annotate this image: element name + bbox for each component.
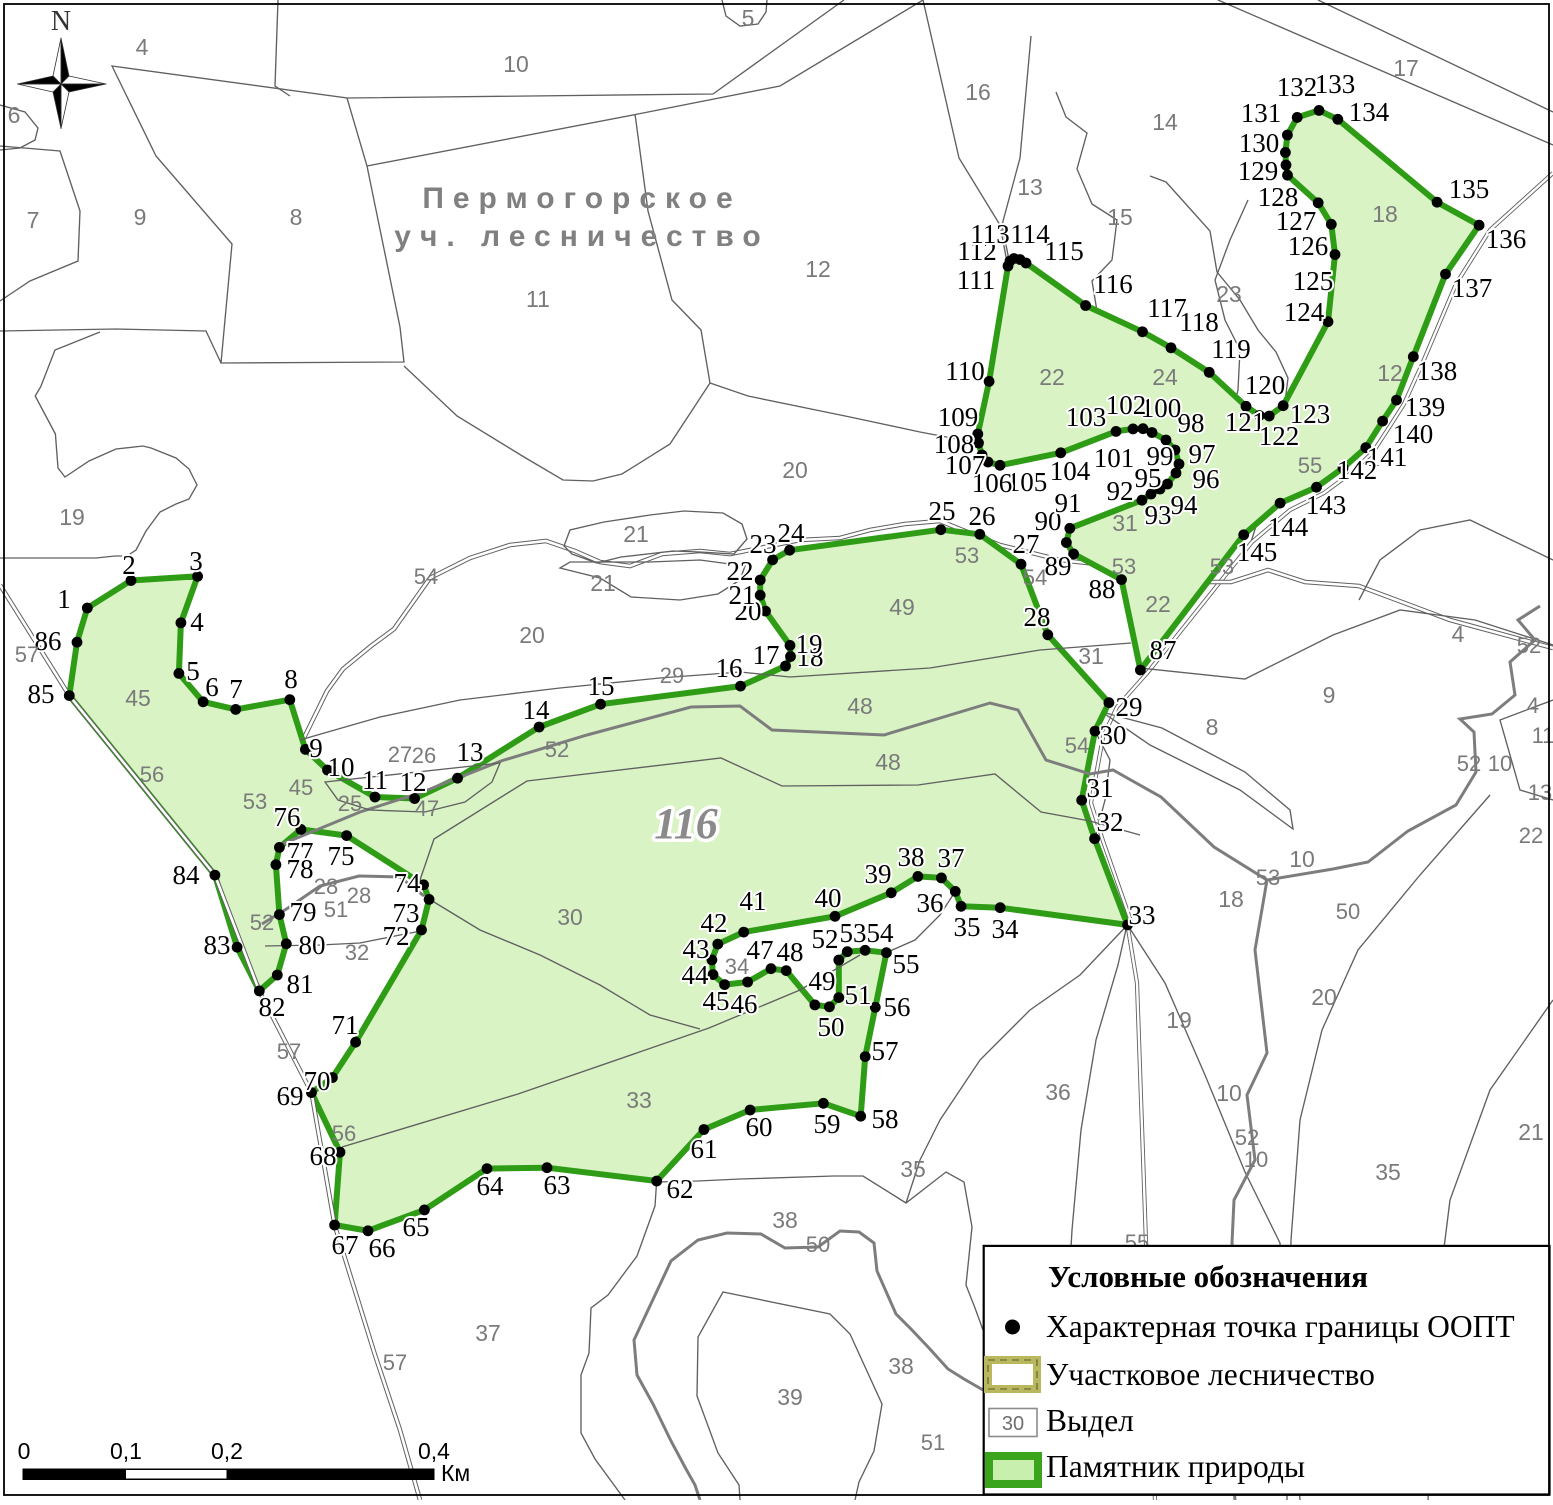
svg-text:45: 45 — [125, 685, 151, 711]
svg-text:17: 17 — [1393, 55, 1419, 81]
svg-text:38: 38 — [888, 1353, 914, 1379]
svg-text:11: 11 — [362, 765, 388, 795]
svg-text:113: 113 — [970, 219, 1010, 249]
svg-text:125: 125 — [1293, 266, 1334, 296]
svg-text:39: 39 — [865, 859, 892, 889]
svg-text:93: 93 — [1145, 500, 1172, 530]
svg-text:32: 32 — [1097, 807, 1124, 837]
svg-text:21: 21 — [1518, 1119, 1544, 1145]
svg-text:20: 20 — [1311, 984, 1337, 1010]
svg-text:26: 26 — [969, 501, 996, 531]
svg-text:37: 37 — [475, 1320, 501, 1346]
svg-text:54: 54 — [1065, 733, 1089, 758]
svg-text:49: 49 — [809, 966, 836, 996]
svg-text:30: 30 — [1002, 1413, 1024, 1435]
svg-text:9: 9 — [309, 733, 323, 763]
svg-text:10: 10 — [1289, 846, 1315, 872]
svg-text:55: 55 — [893, 949, 920, 979]
svg-text:101: 101 — [1094, 443, 1135, 473]
svg-text:124: 124 — [1284, 297, 1325, 327]
svg-text:28: 28 — [314, 874, 338, 899]
svg-text:28: 28 — [347, 883, 371, 908]
svg-text:0,2: 0,2 — [211, 1438, 243, 1464]
svg-text:48: 48 — [847, 693, 873, 719]
svg-text:31: 31 — [1078, 643, 1104, 669]
svg-text:5: 5 — [742, 5, 755, 31]
svg-text:28: 28 — [1024, 602, 1051, 632]
svg-text:52: 52 — [1517, 633, 1541, 658]
svg-text:118: 118 — [1179, 307, 1219, 337]
svg-text:53: 53 — [243, 789, 267, 814]
svg-text:13: 13 — [1017, 174, 1043, 200]
svg-text:71: 71 — [332, 1010, 359, 1040]
svg-text:142: 142 — [1337, 455, 1378, 485]
svg-text:14: 14 — [523, 695, 551, 725]
svg-text:60: 60 — [746, 1112, 773, 1142]
svg-text:23: 23 — [1216, 281, 1242, 307]
svg-text:51: 51 — [845, 980, 872, 1010]
svg-text:50: 50 — [806, 1232, 830, 1257]
svg-text:139: 139 — [1405, 392, 1446, 422]
svg-text:56: 56 — [140, 762, 164, 787]
svg-text:7: 7 — [27, 207, 40, 233]
svg-text:31: 31 — [1112, 510, 1138, 536]
svg-text:4: 4 — [136, 34, 149, 60]
svg-text:57: 57 — [15, 642, 39, 667]
svg-text:119: 119 — [1211, 334, 1251, 364]
svg-text:75: 75 — [328, 841, 355, 871]
svg-text:48: 48 — [777, 937, 804, 967]
svg-text:143: 143 — [1306, 490, 1347, 520]
svg-text:52: 52 — [250, 910, 274, 935]
svg-text:98: 98 — [1178, 408, 1205, 438]
svg-text:69: 69 — [277, 1081, 304, 1111]
svg-text:Выдел: Выдел — [1046, 1403, 1134, 1438]
svg-text:97: 97 — [1189, 439, 1216, 469]
svg-text:135: 135 — [1449, 174, 1490, 204]
svg-text:20: 20 — [519, 622, 545, 648]
svg-text:17: 17 — [753, 640, 780, 670]
svg-text:45: 45 — [703, 986, 730, 1016]
svg-text:52: 52 — [545, 737, 569, 762]
svg-text:1: 1 — [57, 584, 71, 614]
svg-text:138: 138 — [1417, 356, 1458, 386]
svg-text:2: 2 — [122, 550, 136, 580]
svg-text:64: 64 — [477, 1171, 505, 1201]
svg-text:21: 21 — [623, 521, 649, 547]
svg-text:10: 10 — [328, 752, 355, 782]
svg-text:33: 33 — [1129, 900, 1156, 930]
svg-text:80: 80 — [299, 930, 326, 960]
svg-text:47: 47 — [415, 796, 439, 821]
svg-text:99: 99 — [1147, 441, 1174, 471]
svg-text:4: 4 — [190, 607, 204, 637]
svg-text:110: 110 — [945, 356, 985, 386]
svg-text:35: 35 — [1375, 1159, 1401, 1185]
svg-text:8: 8 — [1206, 714, 1219, 740]
svg-text:45: 45 — [289, 775, 313, 800]
svg-text:53: 53 — [955, 543, 979, 568]
svg-text:5: 5 — [186, 656, 200, 686]
svg-text:10: 10 — [503, 51, 529, 77]
svg-text:Пермогорское: Пермогорское — [422, 182, 741, 215]
svg-text:39: 39 — [777, 1384, 803, 1410]
svg-text:102: 102 — [1106, 390, 1147, 420]
svg-text:82: 82 — [259, 992, 286, 1022]
svg-text:27: 27 — [388, 742, 412, 767]
svg-text:50: 50 — [818, 1012, 845, 1042]
svg-text:30: 30 — [557, 904, 583, 930]
svg-text:10: 10 — [1488, 751, 1512, 776]
svg-text:36: 36 — [1045, 1079, 1071, 1105]
svg-text:78: 78 — [287, 854, 314, 884]
svg-text:79: 79 — [290, 897, 317, 927]
svg-text:53: 53 — [840, 918, 867, 948]
svg-text:N: N — [51, 6, 71, 37]
svg-text:57: 57 — [872, 1036, 899, 1066]
svg-text:51: 51 — [921, 1430, 945, 1455]
svg-text:73: 73 — [393, 898, 420, 928]
svg-text:108: 108 — [934, 429, 975, 459]
svg-text:55: 55 — [1298, 453, 1322, 478]
svg-text:67: 67 — [332, 1230, 359, 1260]
svg-text:29: 29 — [660, 663, 684, 688]
svg-text:134: 134 — [1349, 97, 1390, 127]
svg-text:131: 131 — [1241, 98, 1282, 128]
svg-text:130: 130 — [1239, 128, 1280, 158]
svg-text:47: 47 — [747, 935, 774, 965]
svg-text:54: 54 — [867, 918, 895, 948]
svg-text:9: 9 — [134, 204, 147, 230]
svg-text:85: 85 — [28, 679, 55, 709]
svg-text:132: 132 — [1277, 72, 1318, 102]
svg-text:9: 9 — [1323, 682, 1336, 708]
svg-text:30: 30 — [1100, 720, 1127, 750]
svg-text:59: 59 — [814, 1109, 841, 1139]
svg-text:22: 22 — [1145, 591, 1171, 617]
svg-text:21: 21 — [590, 570, 616, 596]
svg-text:53: 53 — [1210, 554, 1234, 579]
svg-text:15: 15 — [588, 671, 615, 701]
svg-text:10: 10 — [1244, 1147, 1268, 1172]
svg-text:104: 104 — [1050, 456, 1091, 486]
svg-text:8: 8 — [284, 664, 298, 694]
svg-text:52: 52 — [1457, 751, 1481, 776]
svg-text:22: 22 — [1039, 364, 1065, 390]
svg-text:19: 19 — [59, 504, 85, 530]
svg-text:24: 24 — [1152, 364, 1178, 390]
svg-text:22: 22 — [727, 556, 754, 586]
svg-text:62: 62 — [667, 1174, 694, 1204]
svg-text:57: 57 — [277, 1039, 301, 1064]
svg-text:Участковое лесничество: Участковое лесничество — [1046, 1357, 1375, 1392]
svg-text:54: 54 — [414, 564, 438, 589]
svg-text:116: 116 — [1093, 269, 1133, 299]
svg-text:16: 16 — [716, 653, 743, 683]
svg-text:103: 103 — [1066, 402, 1107, 432]
svg-text:92: 92 — [1107, 476, 1134, 506]
svg-text:40: 40 — [815, 883, 842, 913]
svg-text:50: 50 — [1336, 899, 1360, 924]
svg-text:34: 34 — [725, 954, 749, 979]
svg-text:уч. лесничество: уч. лесничество — [394, 220, 769, 253]
svg-text:12: 12 — [1377, 360, 1403, 386]
svg-text:3: 3 — [189, 546, 203, 576]
svg-text:65: 65 — [403, 1212, 430, 1242]
svg-text:6: 6 — [8, 102, 21, 128]
svg-text:100: 100 — [1141, 393, 1182, 423]
svg-text:8: 8 — [290, 204, 303, 230]
svg-text:26: 26 — [412, 743, 436, 768]
svg-text:83: 83 — [204, 930, 231, 960]
svg-text:Характерная точка границы ООПТ: Характерная точка границы ООПТ — [1046, 1309, 1515, 1344]
svg-text:48: 48 — [875, 749, 901, 775]
svg-text:0,1: 0,1 — [110, 1438, 142, 1464]
svg-text:56: 56 — [332, 1121, 356, 1146]
svg-text:87: 87 — [1150, 635, 1177, 665]
svg-text:84: 84 — [173, 860, 201, 890]
svg-text:61: 61 — [691, 1134, 718, 1164]
svg-text:18: 18 — [1218, 886, 1244, 912]
svg-text:25: 25 — [338, 791, 362, 816]
svg-text:145: 145 — [1237, 537, 1278, 567]
svg-text:91: 91 — [1055, 488, 1082, 518]
svg-text:56: 56 — [884, 992, 911, 1022]
svg-text:133: 133 — [1315, 69, 1356, 99]
svg-text:34: 34 — [992, 914, 1020, 944]
svg-text:116: 116 — [654, 799, 718, 848]
svg-text:109: 109 — [938, 402, 979, 432]
svg-text:31: 31 — [1087, 773, 1114, 803]
svg-text:11: 11 — [526, 286, 550, 312]
svg-text:63: 63 — [544, 1170, 571, 1200]
svg-text:4: 4 — [1527, 693, 1539, 718]
svg-text:94: 94 — [1171, 490, 1199, 520]
svg-text:12: 12 — [805, 256, 831, 282]
svg-text:38: 38 — [898, 842, 925, 872]
svg-text:35: 35 — [954, 912, 981, 942]
svg-text:123: 123 — [1290, 399, 1331, 429]
svg-text:41: 41 — [740, 886, 767, 916]
svg-text:111: 111 — [957, 265, 996, 295]
svg-text:Км: Км — [441, 1460, 470, 1486]
svg-text:Условные обозначения: Условные обозначения — [1048, 1259, 1368, 1294]
svg-text:120: 120 — [1245, 370, 1286, 400]
svg-text:19: 19 — [796, 629, 823, 659]
svg-text:53: 53 — [1112, 554, 1136, 579]
svg-text:23: 23 — [750, 529, 777, 559]
svg-text:Памятник природы: Памятник природы — [1046, 1449, 1305, 1484]
svg-text:105: 105 — [1007, 467, 1048, 497]
svg-text:46: 46 — [731, 989, 758, 1019]
svg-text:115: 115 — [1044, 236, 1084, 266]
svg-text:136: 136 — [1486, 224, 1527, 254]
svg-text:51: 51 — [324, 897, 348, 922]
svg-text:58: 58 — [872, 1104, 899, 1134]
svg-text:4: 4 — [1452, 621, 1465, 647]
svg-text:70: 70 — [304, 1066, 331, 1096]
svg-text:16: 16 — [965, 79, 991, 105]
svg-text:35: 35 — [900, 1156, 926, 1182]
svg-text:6: 6 — [205, 672, 219, 702]
svg-text:57: 57 — [383, 1350, 407, 1375]
svg-text:22: 22 — [1519, 823, 1543, 848]
svg-text:36: 36 — [917, 888, 944, 918]
svg-text:49: 49 — [889, 594, 915, 620]
svg-text:53: 53 — [1256, 865, 1280, 890]
svg-text:32: 32 — [345, 940, 369, 965]
svg-text:24: 24 — [778, 518, 806, 548]
svg-text:20: 20 — [782, 457, 808, 483]
svg-text:33: 33 — [626, 1087, 652, 1113]
svg-text:38: 38 — [772, 1207, 798, 1233]
svg-text:129: 129 — [1238, 156, 1279, 186]
svg-text:0: 0 — [18, 1438, 31, 1464]
svg-text:54: 54 — [1023, 565, 1047, 590]
svg-text:66: 66 — [369, 1233, 396, 1263]
svg-text:74: 74 — [394, 868, 422, 898]
svg-text:52: 52 — [812, 924, 839, 954]
svg-text:14: 14 — [1152, 109, 1178, 135]
svg-text:13: 13 — [457, 737, 484, 767]
svg-text:81: 81 — [287, 969, 314, 999]
svg-text:37: 37 — [938, 843, 965, 873]
svg-text:10: 10 — [1216, 1080, 1242, 1106]
svg-text:137: 137 — [1452, 273, 1493, 303]
svg-text:29: 29 — [1116, 692, 1143, 722]
svg-text:89: 89 — [1045, 551, 1072, 581]
svg-text:25: 25 — [929, 496, 956, 526]
svg-text:19: 19 — [1166, 1007, 1192, 1033]
svg-text:12: 12 — [400, 767, 427, 797]
svg-text:15: 15 — [1107, 204, 1133, 230]
svg-text:7: 7 — [229, 674, 243, 704]
svg-text:76: 76 — [274, 802, 301, 832]
svg-text:128: 128 — [1258, 182, 1299, 212]
svg-text:18: 18 — [1372, 201, 1398, 227]
